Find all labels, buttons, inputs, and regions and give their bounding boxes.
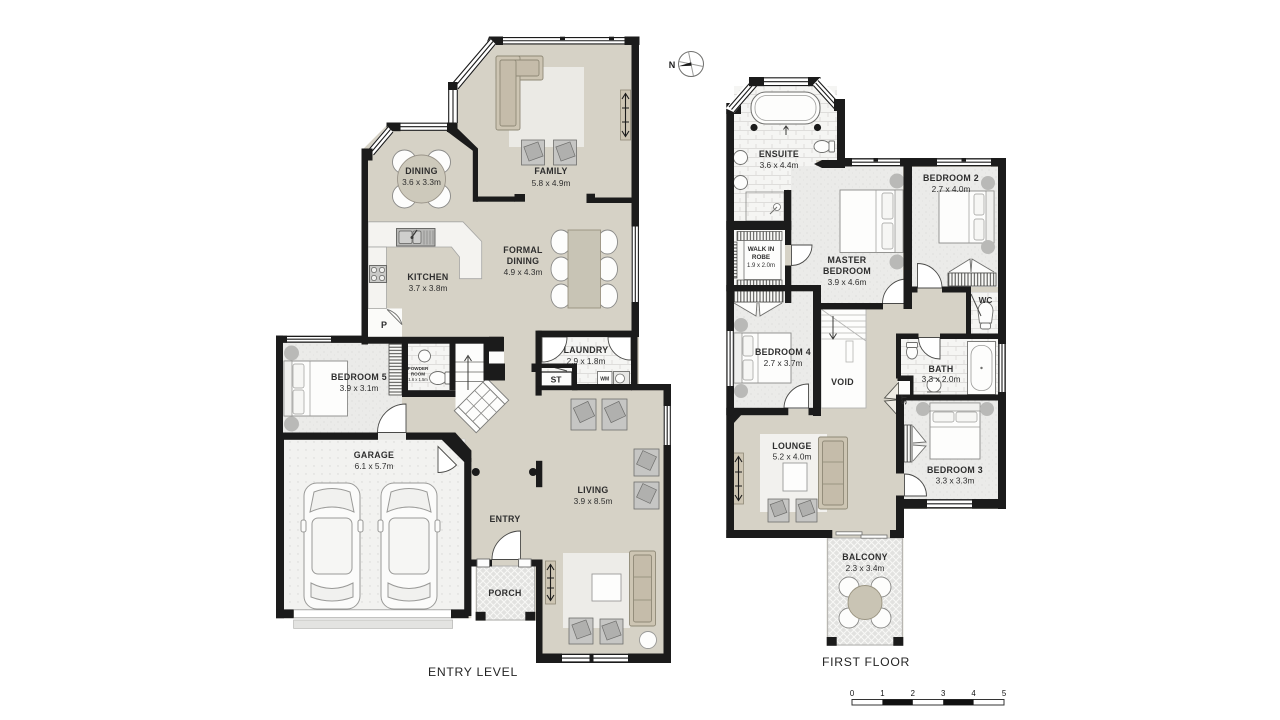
svg-text:FAMILY: FAMILY: [534, 166, 567, 176]
svg-text:KITCHEN: KITCHEN: [407, 272, 448, 282]
svg-text:2.7 x 4.0m: 2.7 x 4.0m: [932, 184, 971, 194]
svg-text:POWDER: POWDER: [408, 366, 429, 371]
svg-text:LIVING: LIVING: [577, 485, 608, 495]
svg-text:WM: WM: [600, 377, 609, 383]
svg-text:BEDROOM 3: BEDROOM 3: [927, 465, 983, 475]
svg-text:MASTER: MASTER: [828, 255, 867, 265]
svg-text:3.7 x 3.8m: 3.7 x 3.8m: [409, 283, 448, 293]
svg-text:ENSUITE: ENSUITE: [759, 149, 799, 159]
svg-text:2.9 x 1.8m: 2.9 x 1.8m: [567, 356, 606, 366]
svg-text:3.3 x 2.0m: 3.3 x 2.0m: [922, 374, 961, 384]
svg-text:3.6 x 3.3m: 3.6 x 3.3m: [402, 177, 441, 187]
svg-text:ST: ST: [900, 395, 909, 405]
svg-text:LOUNGE: LOUNGE: [772, 441, 811, 451]
svg-text:GARAGE: GARAGE: [354, 450, 394, 460]
svg-text:1: 1: [880, 689, 884, 698]
svg-text:VOID: VOID: [831, 377, 854, 387]
svg-text:3.6 x 4.4m: 3.6 x 4.4m: [760, 160, 799, 170]
svg-text:4: 4: [971, 689, 976, 698]
svg-text:P: P: [381, 320, 387, 330]
svg-text:ENTRY LEVEL: ENTRY LEVEL: [428, 665, 518, 679]
svg-text:WALK IN: WALK IN: [748, 246, 775, 253]
svg-text:BEDROOM: BEDROOM: [823, 266, 871, 276]
svg-text:3: 3: [941, 689, 945, 698]
svg-text:WC: WC: [979, 296, 993, 305]
svg-text:ST: ST: [551, 375, 563, 385]
svg-text:BATH: BATH: [929, 364, 954, 374]
svg-text:3.9 x 8.5m: 3.9 x 8.5m: [574, 496, 613, 506]
svg-text:5.2 x 4.0m: 5.2 x 4.0m: [773, 452, 812, 462]
svg-text:2.3 x 3.4m: 2.3 x 3.4m: [846, 563, 885, 573]
svg-text:DINING: DINING: [507, 256, 540, 266]
svg-text:1.6 x 1.5m: 1.6 x 1.5m: [408, 377, 428, 382]
svg-text:FIRST FLOOR: FIRST FLOOR: [822, 655, 910, 669]
svg-text:1.9 x 2.0m: 1.9 x 2.0m: [747, 263, 775, 269]
svg-text:5: 5: [1002, 689, 1007, 698]
svg-text:FORMAL: FORMAL: [503, 245, 543, 255]
svg-text:5.8 x 4.9m: 5.8 x 4.9m: [532, 178, 571, 188]
svg-text:0: 0: [850, 689, 855, 698]
svg-text:3.9 x 3.1m: 3.9 x 3.1m: [340, 383, 379, 393]
svg-text:ROOM: ROOM: [411, 372, 425, 377]
svg-text:2.7 x 3.7m: 2.7 x 3.7m: [764, 358, 803, 368]
svg-text:N: N: [669, 60, 676, 70]
svg-text:3.9 x 4.6m: 3.9 x 4.6m: [828, 277, 867, 287]
svg-text:4.9 x 4.3m: 4.9 x 4.3m: [504, 267, 543, 277]
svg-text:BALCONY: BALCONY: [842, 552, 888, 562]
svg-text:PORCH: PORCH: [488, 588, 521, 598]
svg-text:LAUNDRY: LAUNDRY: [564, 345, 609, 355]
svg-text:ENTRY: ENTRY: [490, 514, 521, 524]
svg-text:BEDROOM 5: BEDROOM 5: [331, 372, 387, 382]
svg-text:DINING: DINING: [405, 166, 438, 176]
svg-text:BEDROOM 4: BEDROOM 4: [755, 347, 811, 357]
svg-text:2: 2: [911, 689, 915, 698]
svg-text:3.3 x 3.3m: 3.3 x 3.3m: [936, 476, 975, 486]
svg-text:6.1 x 5.7m: 6.1 x 5.7m: [355, 461, 394, 471]
svg-text:ROBE: ROBE: [752, 254, 770, 261]
svg-text:BEDROOM 2: BEDROOM 2: [923, 173, 979, 183]
